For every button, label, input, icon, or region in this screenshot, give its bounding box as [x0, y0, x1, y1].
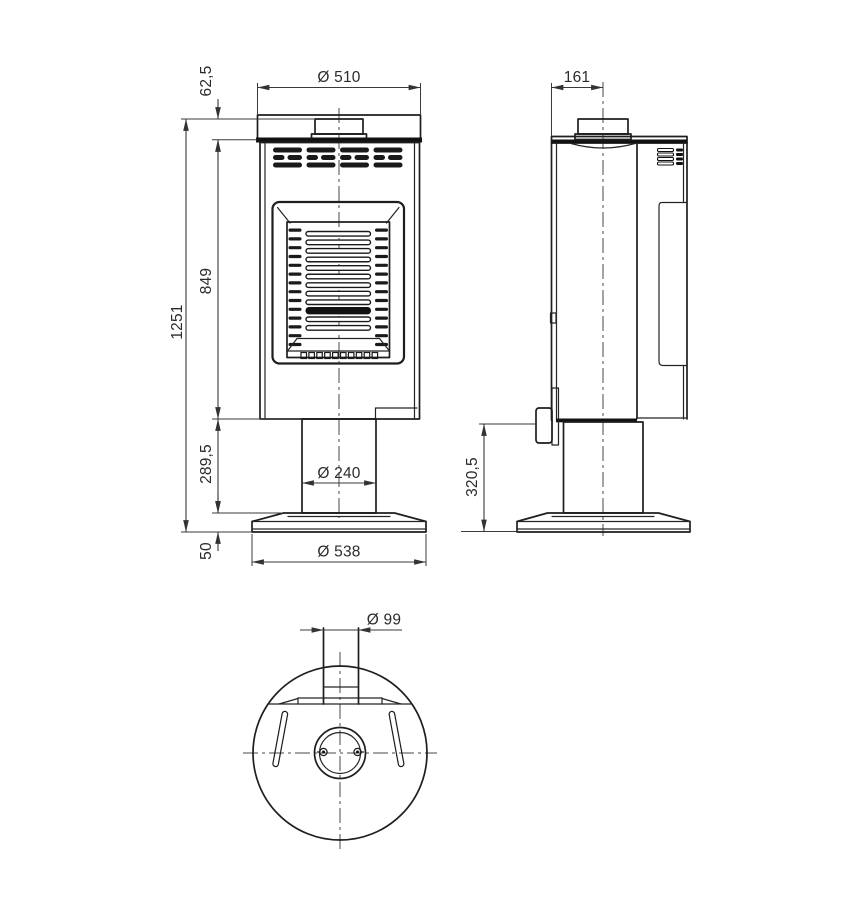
front-body [260, 143, 420, 420]
door-slat [375, 299, 388, 302]
door-slat [375, 343, 388, 346]
door-slat [289, 246, 302, 249]
door-slat [289, 273, 302, 276]
side-view: 161 320,5 [461, 69, 690, 536]
door-slat [375, 281, 388, 284]
technical-drawing: Ø 510 62,5 1251 849 289,5 50 Ø 240 Ø 538 [0, 0, 846, 900]
door-slat [375, 273, 388, 276]
door-slat [289, 308, 302, 311]
door-slat [289, 255, 302, 258]
door-slat [289, 237, 302, 240]
side-vent-slat [658, 149, 674, 152]
grille-slat [307, 155, 319, 160]
front-view: Ø 510 62,5 1251 849 289,5 50 Ø 240 Ø 538 [169, 66, 426, 566]
bottom-screw-right-dot [356, 751, 359, 754]
side-vent-slat [658, 158, 674, 161]
door-louvers [306, 232, 371, 331]
door-louver [306, 326, 371, 331]
door-slat [289, 264, 302, 267]
dim-pedestal-height-label: 289,5 [198, 444, 215, 484]
door-louver [306, 249, 371, 254]
door-louver [306, 291, 371, 296]
door-louver [306, 317, 371, 322]
grille-slat [288, 155, 303, 160]
door-slat [375, 290, 388, 293]
side-vent-slat-small [676, 153, 683, 156]
dim-total-height-label: 1251 [169, 304, 186, 339]
dim-top-diameter-label: Ø 510 [317, 69, 360, 86]
grille-slat [307, 163, 336, 168]
bottom-flange-wing-right [382, 699, 401, 705]
door-louver [306, 257, 371, 262]
dim-handle-height-label: 320,5 [464, 457, 481, 497]
door-slat [375, 237, 388, 240]
grille-slat [374, 155, 386, 160]
grille-slat [388, 155, 403, 160]
front-flue-collar-shadow [312, 138, 367, 142]
door-left-slat-column [289, 229, 302, 347]
dim-base-height-label: 50 [198, 542, 215, 560]
drawing-canvas: Ø 510 62,5 1251 849 289,5 50 Ø 240 Ø 538 [0, 0, 846, 900]
door-slat [375, 255, 388, 258]
dim-collar-height-label: 62,5 [198, 66, 215, 97]
bottom-flange-wing-left [279, 699, 298, 705]
door-slat [375, 264, 388, 267]
grille-slat [273, 163, 302, 168]
grille-slat [273, 148, 302, 153]
door-louver [306, 283, 371, 288]
dim-duct-diameter-label: Ø 99 [367, 612, 401, 629]
side-vent-grille [658, 149, 684, 166]
dim-body-height-label: 849 [198, 268, 215, 294]
side-vent-slat-small [676, 149, 683, 152]
side-vent-slat-small [676, 162, 683, 165]
bottom-screw-left-dot [322, 751, 325, 754]
grille-slat [374, 148, 403, 153]
side-vent-slat-small [676, 158, 683, 161]
grille-slat [374, 163, 403, 168]
door-slat [375, 308, 388, 311]
door-louver [306, 300, 371, 305]
door-slat [375, 317, 388, 320]
door-louver [306, 232, 371, 237]
grille-slat [321, 155, 336, 160]
door-slat [289, 281, 302, 284]
dim-flue-offset-label: 161 [564, 69, 590, 86]
bottom-slot-right [389, 711, 405, 767]
door-slat [289, 334, 302, 337]
front-bottom-step [376, 408, 418, 419]
door-slat [289, 325, 302, 328]
door-louver [306, 240, 371, 245]
door-bevel-left [278, 208, 291, 224]
door-louver [306, 266, 371, 271]
door-slat [375, 334, 388, 337]
door-slat [375, 246, 388, 249]
door-slat [289, 317, 302, 320]
door-slat [375, 325, 388, 328]
front-vent-grille [273, 148, 403, 168]
door-slat [289, 299, 302, 302]
grille-slat [307, 148, 336, 153]
grille-slat [273, 155, 285, 160]
grille-slat [340, 163, 369, 168]
door-louver-solid [306, 307, 371, 313]
grille-slat [340, 155, 352, 160]
door-slat [375, 229, 388, 232]
door-slat [289, 290, 302, 293]
side-rear-recess-panel [659, 203, 687, 366]
door-slat [289, 229, 302, 232]
door-right-slat-column [375, 229, 388, 347]
dim-pedestal-diameter-label: Ø 240 [317, 465, 360, 482]
grille-slat [340, 148, 369, 153]
dim-base-diameter-label: Ø 538 [317, 544, 360, 561]
door-bevel-right [387, 208, 400, 224]
side-handle-bracket [552, 388, 559, 445]
side-handle-knob [536, 408, 552, 443]
side-vent-slat [658, 153, 674, 156]
bottom-view: Ø 99 [243, 612, 437, 853]
grille-slat [355, 155, 370, 160]
bottom-slot-left [272, 711, 288, 767]
door-louver [306, 274, 371, 279]
door-slat [289, 343, 302, 346]
side-vent-slat [658, 162, 674, 165]
